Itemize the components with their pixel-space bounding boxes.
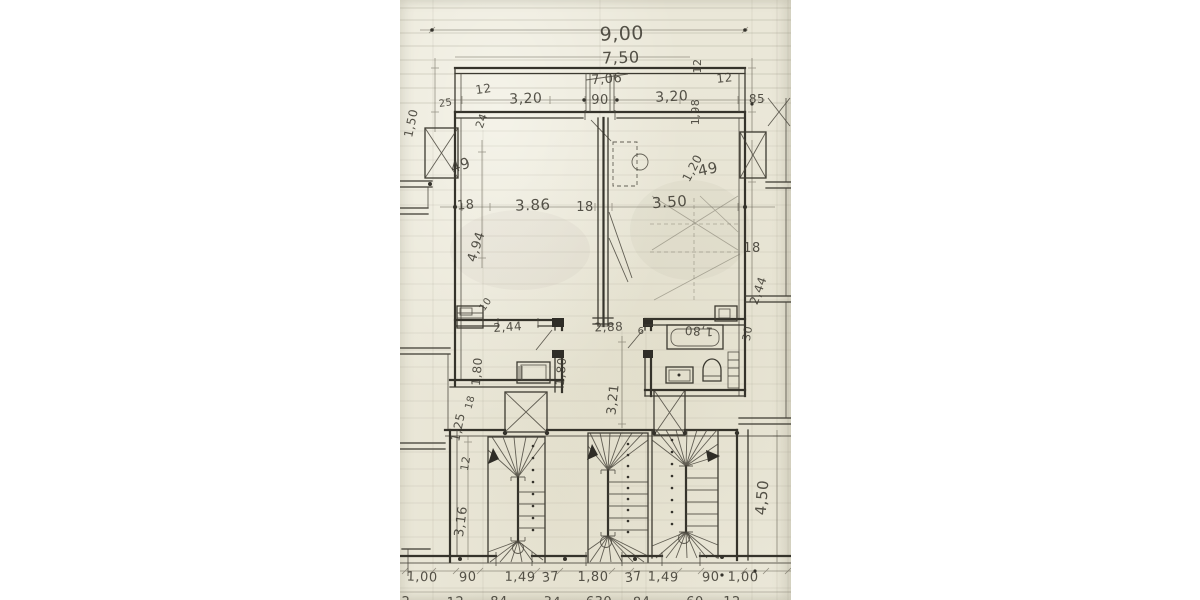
- neighbour-walls-left: [400, 181, 450, 576]
- dim-pier-right: 85: [749, 92, 765, 106]
- dim-room-left-width: 3.86: [515, 195, 551, 214]
- dim-left-b: 18: [463, 394, 477, 410]
- dim-crossed-width: 7,06: [591, 71, 623, 88]
- dim-cut-3: 34: [543, 595, 561, 600]
- dim-jamb-left: 49: [448, 154, 473, 177]
- dim-bottom-3: 37: [541, 569, 560, 586]
- dim-bay-left: 3,20: [509, 90, 543, 107]
- stair-left: [450, 430, 545, 562]
- towel-radiator: [728, 352, 739, 388]
- dim-cut-5: 84: [633, 595, 651, 600]
- stair-right: [652, 430, 748, 560]
- wash-basin: [666, 367, 693, 383]
- dim-offset-left: 24: [473, 112, 490, 131]
- dim-overall-width: 9,00: [599, 22, 644, 46]
- column-hatch-mid-right: [654, 390, 685, 435]
- dim-bottom-5: 37: [624, 569, 643, 586]
- dim-small-offset: 10: [478, 296, 495, 314]
- dim-bottom-4: 1,80: [578, 570, 609, 585]
- dim-bottom-0: 1,00: [406, 569, 437, 585]
- toilet: [703, 359, 721, 381]
- floor-plan-paper: 9,00 7,50 7,06 12 3,20 90 3,20 12 12 1,9…: [400, 0, 791, 600]
- dim-depth-right: 1,98: [689, 99, 702, 126]
- dim-left-a: 1,25: [448, 412, 468, 443]
- dim-cut-4: 630: [586, 595, 612, 600]
- dim-depth-left: 1,50: [401, 108, 421, 139]
- right-margin: [791, 0, 1200, 600]
- dim-bottom-2: 1,49: [504, 570, 535, 586]
- middle-wall: [598, 118, 632, 326]
- dim-cut-2: 84: [490, 595, 508, 600]
- dim-bath-offset: 30: [740, 325, 755, 342]
- stove: [517, 362, 550, 383]
- column-hatch-mid-left: [505, 392, 547, 432]
- neighbour-walls-right: [739, 98, 791, 424]
- dim-bay-right: 3,20: [655, 88, 689, 106]
- dim-wall-right-rot: 12: [691, 59, 704, 74]
- dim-wall-c: 18: [743, 241, 761, 256]
- dim-kitchen-depth-b: 1,80: [553, 357, 569, 387]
- floor-plan-drawing: 9,00 7,50 7,06 12 3,20 90 3,20 12 12 1,9…: [400, 0, 791, 600]
- dim-bottom-8: 1,00: [727, 570, 758, 586]
- dim-cut-1: 12: [446, 594, 465, 600]
- dim-wall-small: 6: [638, 326, 645, 337]
- dim-kitchen-depth-a: 1,80: [469, 357, 485, 387]
- dim-cut-0: 2: [402, 595, 411, 600]
- dim-inner-width: 7,50: [602, 47, 640, 67]
- dim-pier-left: 25: [438, 97, 453, 110]
- dim-wall-a: 18: [456, 197, 475, 213]
- scanned-floor-plan-page: 9,00 7,50 7,06 12 3,20 90 3,20 12 12 1,9…: [0, 0, 1200, 600]
- dim-stair-wall: 12: [458, 455, 473, 472]
- dim-wall-left: 12: [474, 81, 492, 97]
- dim-stair-depth: 4,50: [752, 479, 773, 516]
- dim-hall-depth: 3,21: [604, 383, 622, 415]
- dim-room-right-width: 3.50: [651, 192, 688, 212]
- dim-wall-right: 12: [716, 70, 734, 86]
- left-margin: [0, 0, 400, 600]
- dim-kitchen-width: 2,44: [493, 319, 523, 335]
- dim-cut-7: 12: [723, 595, 741, 600]
- dim-hall-width: 2,88: [594, 320, 623, 335]
- dim-bottom-7: 90: [702, 570, 720, 586]
- dim-bottom-6: 1,49: [647, 569, 678, 585]
- stair-direction-arrow: [488, 448, 499, 464]
- dim-cut-6: 60: [686, 595, 704, 600]
- dim-bottom-1: 90: [459, 570, 477, 586]
- dim-wall-b: 18: [576, 200, 594, 215]
- smudge: [630, 180, 750, 280]
- ceiling-lamp: [632, 154, 648, 170]
- dim-bath-width: 1,80: [684, 323, 713, 338]
- dim-door-center: 90: [591, 93, 609, 108]
